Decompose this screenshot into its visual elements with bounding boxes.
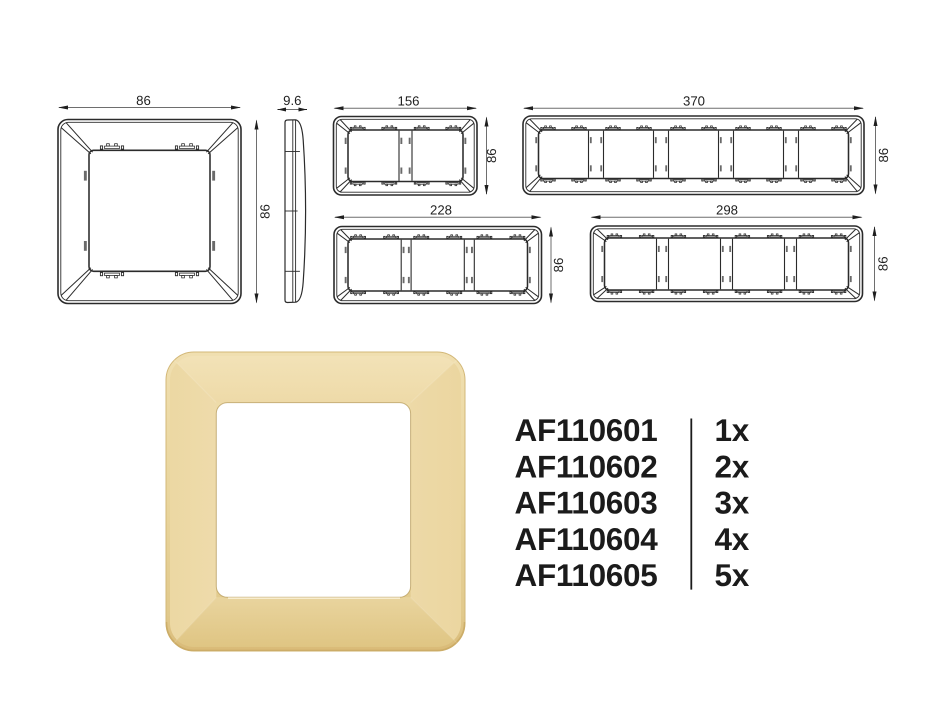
svg-text:AF110605: AF110605	[515, 557, 658, 593]
svg-text:9.6: 9.6	[283, 93, 301, 108]
svg-text:AF110601: AF110601	[515, 412, 658, 448]
svg-text:AF110603: AF110603	[515, 485, 658, 521]
svg-text:5x: 5x	[715, 557, 750, 593]
svg-text:156: 156	[397, 93, 419, 108]
svg-text:1x: 1x	[715, 412, 750, 448]
svg-text:228: 228	[430, 202, 452, 217]
svg-text:370: 370	[683, 93, 705, 108]
svg-text:86: 86	[876, 148, 891, 163]
svg-text:86: 86	[484, 148, 499, 163]
svg-text:4x: 4x	[715, 521, 750, 557]
svg-text:86: 86	[551, 258, 566, 273]
svg-text:298: 298	[716, 202, 738, 217]
svg-text:86: 86	[257, 204, 272, 219]
svg-text:86: 86	[876, 256, 891, 271]
svg-text:86: 86	[136, 93, 151, 108]
svg-text:AF110604: AF110604	[515, 521, 659, 557]
svg-text:3x: 3x	[715, 485, 750, 521]
svg-text:2x: 2x	[715, 448, 750, 484]
svg-text:AF110602: AF110602	[515, 448, 658, 484]
